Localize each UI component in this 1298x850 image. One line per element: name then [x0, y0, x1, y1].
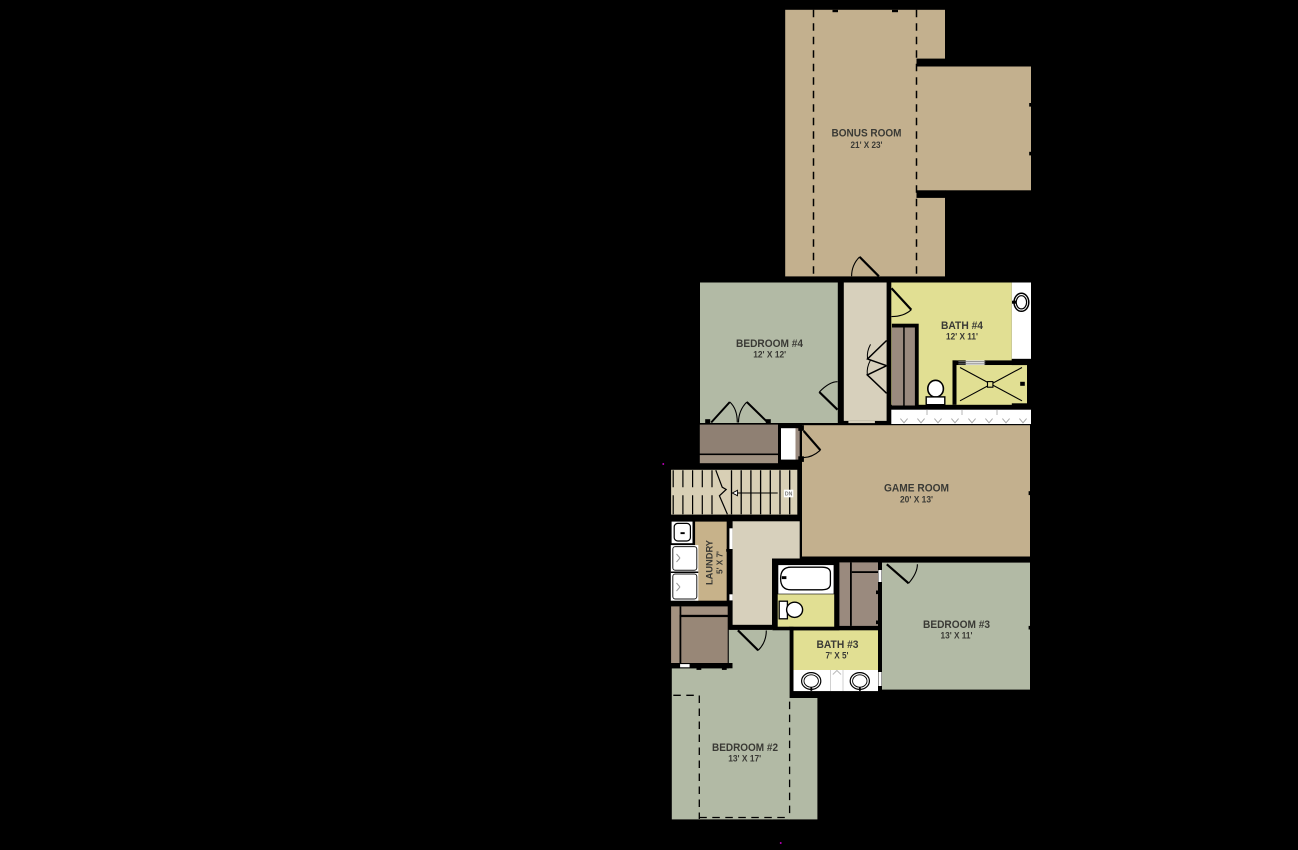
svg-text:12' X 12': 12' X 12'	[753, 350, 786, 360]
svg-text:DN: DN	[785, 492, 793, 498]
svg-text:21' X 23': 21' X 23'	[851, 140, 883, 150]
svg-text:BEDROOM #2: BEDROOM #2	[712, 742, 778, 754]
svg-text:5' X 7': 5' X 7'	[715, 551, 724, 574]
svg-text:20' X 13': 20' X 13'	[900, 495, 933, 505]
svg-text:12' X 11': 12' X 11'	[946, 331, 978, 341]
svg-text:BATH #4: BATH #4	[941, 320, 984, 332]
svg-text:13' X 11': 13' X 11'	[941, 630, 973, 640]
svg-text:LAUNDRY: LAUNDRY	[705, 539, 716, 585]
svg-text:GAME ROOM: GAME ROOM	[884, 483, 949, 495]
svg-text:BEDROOM #4: BEDROOM #4	[736, 338, 804, 350]
svg-text:BATH #3: BATH #3	[817, 639, 859, 651]
svg-text:13' X 17': 13' X 17'	[728, 754, 761, 764]
svg-text:BEDROOM #3: BEDROOM #3	[923, 619, 990, 631]
svg-text:7' X 5': 7' X 5'	[826, 651, 849, 661]
svg-text:BONUS ROOM: BONUS ROOM	[832, 128, 902, 140]
